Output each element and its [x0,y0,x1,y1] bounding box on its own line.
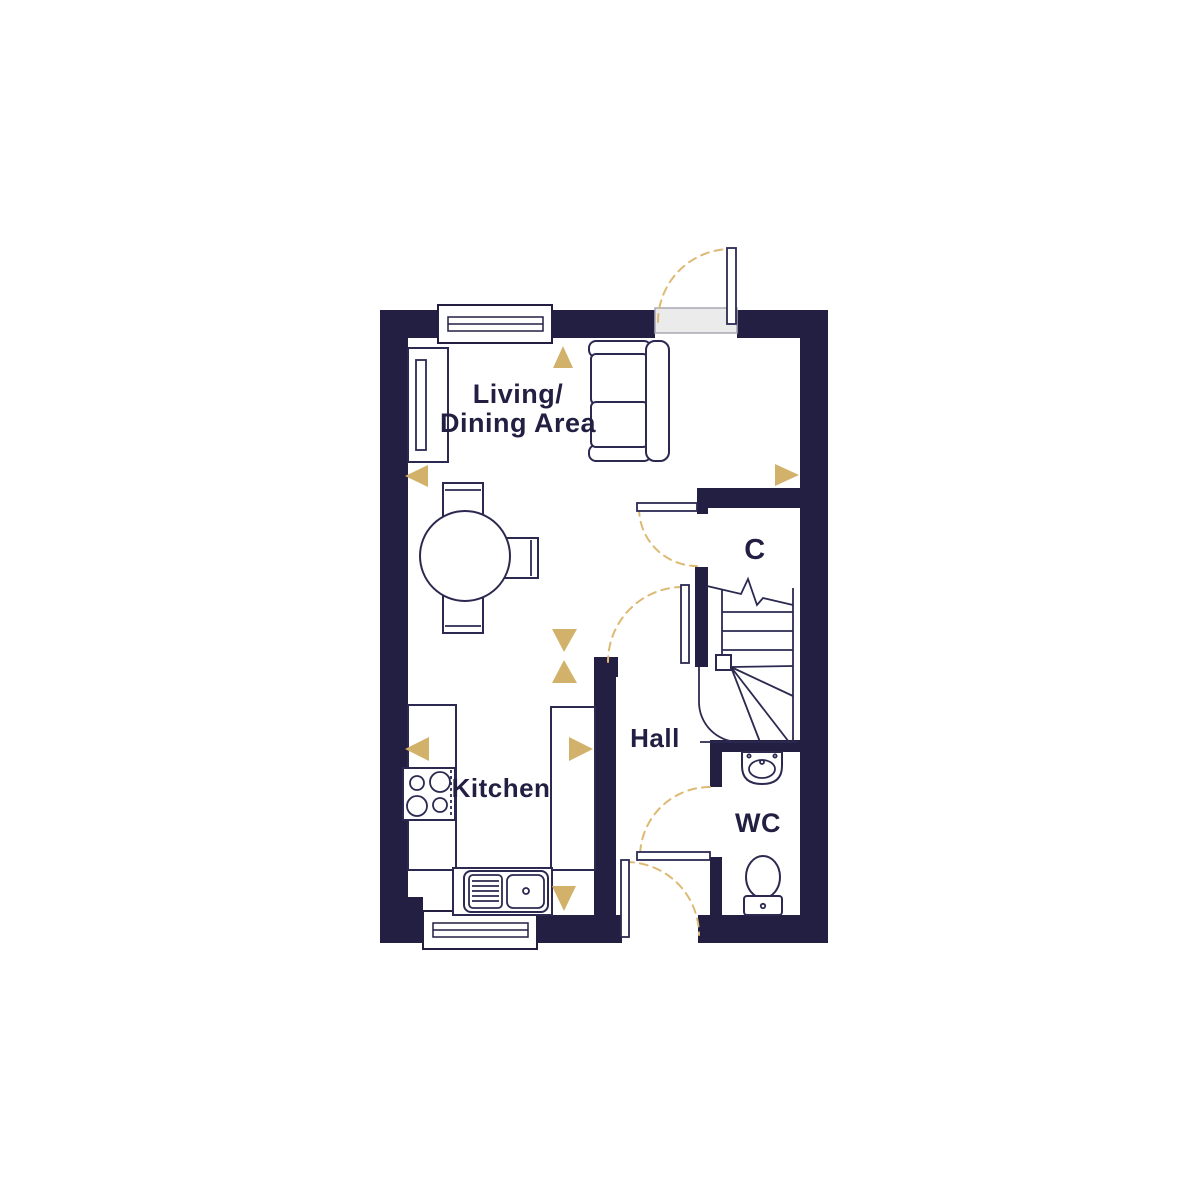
label-cupboard: C [744,534,765,566]
sofa-backrest [646,341,669,461]
toilet [744,856,782,915]
floorplan-svg: Living/ Dining Area Kitchen Hall WC C [0,0,1200,1200]
cupboard-door-arc [639,508,697,566]
stairs-winders [731,666,793,742]
toilet-bowl [746,856,780,898]
wc-door-arc [640,787,710,857]
label-hall: Hall [630,723,680,753]
kitchen-units [403,705,595,915]
wash-basin [742,752,782,784]
wall-right [800,310,828,943]
stair-door-leaf [681,585,689,663]
arrow-up-hourglass [552,660,577,683]
rear-door-leaf [621,860,629,937]
wall-bottom-a [380,915,423,943]
sofa-cushion-2 [591,402,648,447]
sideboard [408,348,448,462]
dining-set [420,483,538,633]
wall-cupboard-doorstop [697,508,708,514]
wall-top-b [552,310,655,338]
wall-bottom-b [537,915,622,943]
arrow-down-hourglass [552,629,577,652]
window-kitchen [423,911,537,949]
wall-kitchen-hall [594,657,616,915]
stairs-curved-wall-end [699,667,739,742]
label-living-line1: Living/ [473,379,564,409]
dining-table [420,511,510,601]
rear-door-arc [626,862,699,935]
arrow-right-landing [775,464,799,486]
stairs [699,579,798,742]
floorplan-canvas: Living/ Dining Area Kitchen Hall WC C [0,0,1200,1200]
wall-wc-left-upper [710,752,722,787]
arrow-left-living [405,465,428,487]
label-living-line2: Dining Area [440,408,597,438]
wall-left [380,310,408,943]
label-wc: WC [735,808,781,838]
wall-hall-stair-divider [695,567,708,667]
wall-wc-left-lower [710,857,722,915]
sink [464,871,548,912]
hob [403,768,455,820]
entrance-door-leaf [727,248,736,324]
counter-right [551,707,595,870]
wall-bottom-c [698,915,828,943]
cupboard-door-leaf [637,503,697,511]
stairs-break-line [707,579,793,605]
wall-cupboard-divider [697,488,828,508]
wall-top-a [380,310,438,338]
wc-door-leaf [637,852,710,860]
wall-kitchen-hall-notch [594,657,618,677]
sofa-cushion-1 [591,354,648,404]
arrow-up-living [553,346,573,368]
sofa [589,341,669,461]
stairs-newel [716,655,731,670]
wall-bottom-step [403,897,423,915]
sideboard-body [408,348,448,462]
window-living [438,305,552,343]
arrow-down-kitchen [552,886,576,911]
entrance-threshold [655,308,737,333]
label-kitchen: Kitchen [452,773,551,803]
stair-door-arc [608,587,683,662]
toilet-cistern [744,896,782,915]
